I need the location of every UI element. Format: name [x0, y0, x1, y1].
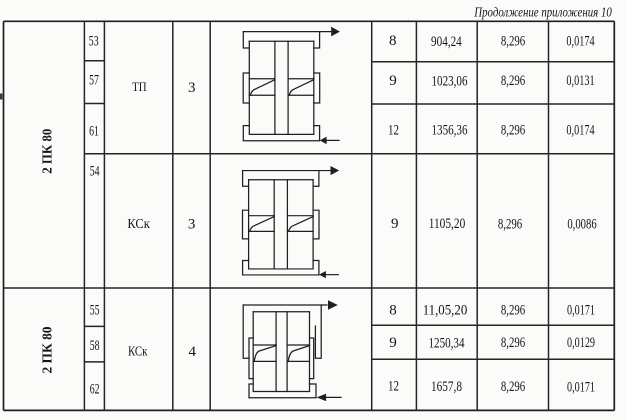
- svg-text:9: 9: [391, 216, 399, 232]
- svg-text:1023,06: 1023,06: [432, 74, 468, 90]
- svg-text:62: 62: [90, 381, 100, 397]
- svg-text:54: 54: [90, 164, 100, 180]
- svg-text:8,296: 8,296: [501, 34, 526, 50]
- svg-text:0,0174: 0,0174: [566, 34, 595, 50]
- svg-text:1250,34: 1250,34: [429, 336, 465, 352]
- svg-text:1657,8: 1657,8: [431, 379, 462, 395]
- svg-text:11,05,20: 11,05,20: [423, 303, 468, 319]
- svg-text:9: 9: [389, 73, 397, 89]
- svg-text:0,0171: 0,0171: [567, 379, 595, 395]
- svg-text:12: 12: [388, 379, 399, 395]
- svg-text:0,0171: 0,0171: [567, 303, 595, 319]
- svg-text:Продолжение приложения 10: Продолжение приложения 10: [474, 4, 612, 19]
- svg-text:904,24: 904,24: [431, 34, 462, 50]
- svg-text:8,296: 8,296: [498, 216, 523, 232]
- svg-text:8,296: 8,296: [501, 73, 526, 89]
- svg-text:57: 57: [89, 73, 99, 89]
- svg-text:КСк: КСк: [128, 343, 148, 358]
- svg-text:3: 3: [188, 80, 196, 96]
- svg-text:55: 55: [90, 303, 100, 319]
- svg-text:1105,20: 1105,20: [429, 216, 466, 232]
- svg-text:61: 61: [89, 123, 99, 139]
- svg-text:2 ПК 80: 2 ПК 80: [39, 129, 54, 174]
- svg-text:2 ПК 80: 2 ПК 80: [40, 326, 55, 373]
- svg-text:КСк: КСк: [127, 216, 150, 231]
- svg-text:8,296: 8,296: [501, 335, 526, 351]
- svg-text:8,296: 8,296: [501, 303, 526, 319]
- svg-text:0,0086: 0,0086: [567, 216, 597, 232]
- svg-text:0,0131: 0,0131: [566, 73, 594, 89]
- svg-text:9: 9: [389, 335, 397, 351]
- svg-text:4: 4: [189, 344, 197, 360]
- svg-text:1356,36: 1356,36: [432, 123, 468, 139]
- svg-text:0,0174: 0,0174: [566, 123, 595, 139]
- svg-text:8: 8: [389, 33, 397, 49]
- svg-text:53: 53: [89, 34, 99, 50]
- svg-text:8,296: 8,296: [501, 379, 526, 395]
- svg-text:8,296: 8,296: [501, 123, 526, 139]
- svg-text:0,0129: 0,0129: [567, 335, 595, 351]
- svg-text:12: 12: [388, 123, 399, 139]
- svg-text:3: 3: [188, 217, 196, 233]
- svg-text:8: 8: [389, 303, 397, 319]
- svg-text:ТП: ТП: [132, 79, 147, 94]
- svg-text:58: 58: [90, 338, 100, 354]
